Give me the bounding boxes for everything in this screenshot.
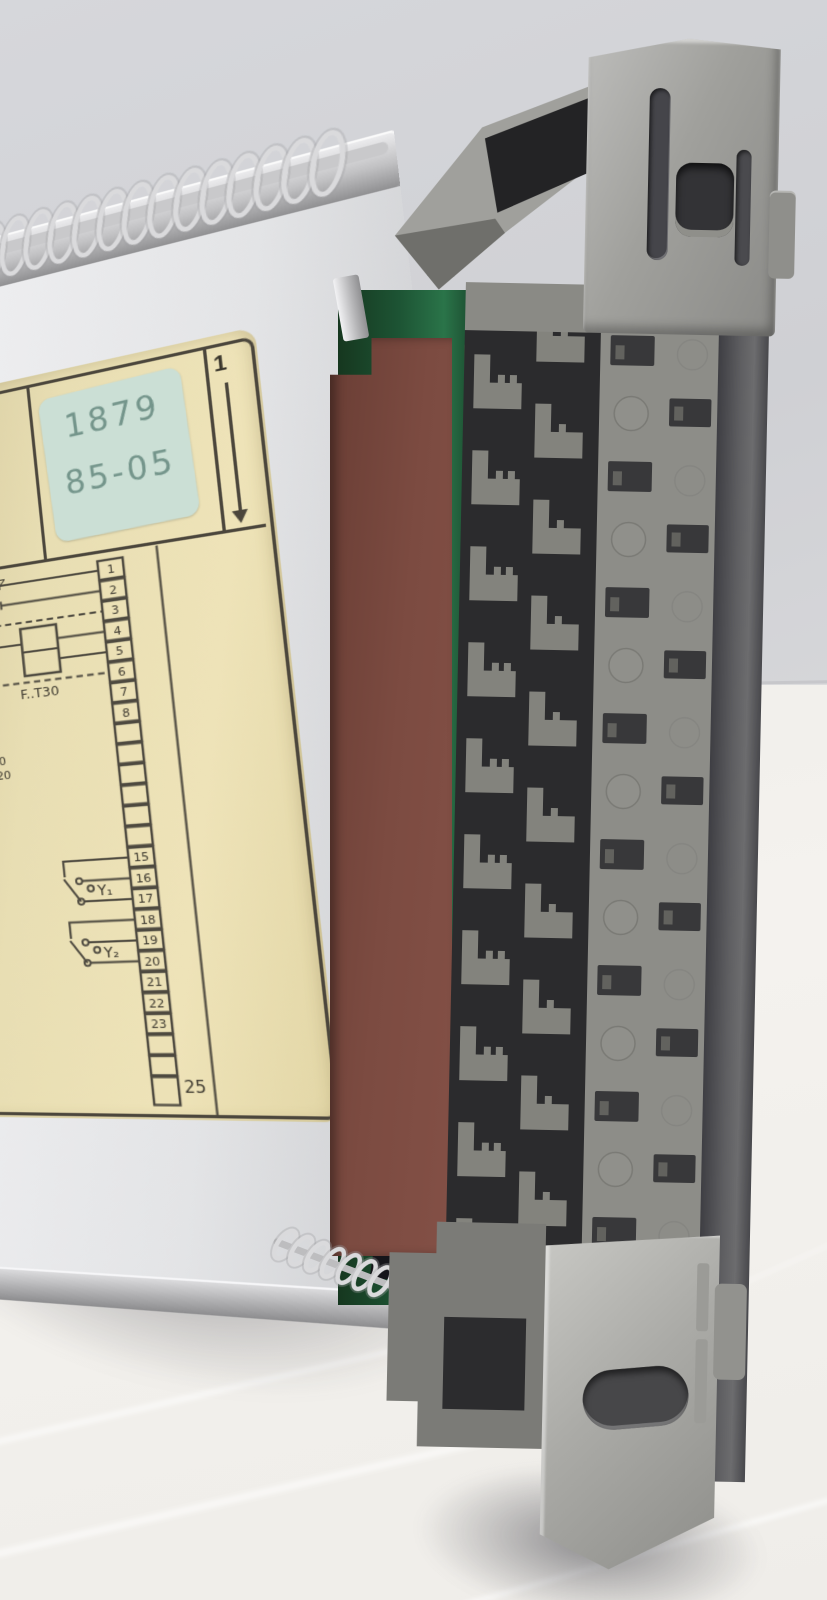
terminal-number: 5: [115, 644, 124, 659]
fuse-divider: [23, 648, 59, 653]
terminal-box: [114, 722, 142, 744]
bracket-ridge: [696, 1263, 709, 1331]
terminal-number: 3: [111, 603, 120, 618]
terminal-box: [123, 805, 151, 826]
relay-feed-wire: [69, 920, 136, 939]
terminal-number: 1: [106, 562, 115, 577]
terminal-number: 6: [117, 665, 126, 680]
terminal-box: [119, 763, 147, 784]
contact-circle: [82, 939, 89, 945]
terminal-box: [125, 825, 153, 846]
orientation-arrow: [225, 382, 243, 514]
wire: [0, 645, 22, 650]
wire: [57, 632, 104, 638]
contact-blade: [70, 940, 87, 963]
edge-connector: [357, 20, 827, 1589]
bracket-tab: [768, 190, 796, 279]
terminal-box: [121, 784, 149, 805]
bottom-bracket-tab: [713, 1284, 747, 1381]
wiring-diagram: 24V~ 50...60Hz 5 4: [0, 528, 331, 1117]
terminal-number: 8: [121, 706, 130, 721]
terminal-number: 7: [119, 685, 128, 700]
sticker-date: 85-05: [47, 438, 195, 507]
wire: [82, 878, 130, 881]
connector-foot-hole: [442, 1317, 526, 1411]
terminal-number: 2: [109, 583, 118, 598]
terminal-box: [149, 1056, 177, 1076]
terminal-box: [117, 742, 145, 764]
terminal-box: [151, 1077, 180, 1105]
terminal-strip: 12345678151617181920212223: [97, 557, 180, 1105]
contact-teeth: [445, 330, 601, 1285]
terminal-number: 22: [148, 997, 165, 1011]
terminal-number: 4: [113, 624, 122, 639]
device-ref: FD-H20: [0, 769, 12, 786]
wire: [85, 899, 133, 902]
supply-wire: [0, 571, 98, 586]
terminal-number: 16: [135, 871, 152, 886]
connector-contact-row: [445, 330, 601, 1285]
terminal-box: [147, 1035, 175, 1055]
terminal-number: 20: [144, 955, 161, 969]
terminal-25-label: 25: [183, 1078, 207, 1098]
fuse-label: F..T30: [20, 682, 60, 702]
terminal-number: 17: [137, 892, 154, 907]
inventory-sticker: 1879 85-05: [37, 366, 200, 543]
terminal-number: 21: [146, 976, 163, 990]
device-ref: DF-...: [0, 784, 1, 800]
terminal-number: 23: [150, 1018, 167, 1032]
output-y2-label: Y₂: [102, 944, 120, 961]
contact-circle: [94, 947, 101, 953]
bracket-slot: [734, 150, 751, 266]
orientation-arrowhead: [232, 509, 249, 525]
output-y1-label: Y₁: [96, 882, 114, 900]
bracket-ridge: [694, 1339, 708, 1423]
wire-tick: [1, 602, 2, 610]
contact-blade: [64, 879, 81, 903]
wire: [59, 652, 106, 658]
orientation-number: 1: [212, 350, 228, 379]
bracket-slot: [646, 88, 671, 260]
contact-circle: [87, 885, 94, 891]
supply-label: 24V~ 50...60Hz: [0, 574, 7, 604]
terminal-number: 15: [133, 850, 150, 865]
wire: [89, 940, 137, 942]
relay-feed-wire: [63, 857, 130, 877]
bracket-hole: [675, 162, 735, 237]
sticker-number: 1879: [39, 381, 186, 452]
terminal-number: 18: [139, 913, 156, 928]
photo-scene: ..22 0..50°C 1879 85-05 1 24V~ 50...60Hz: [0, 0, 827, 1600]
supply-wire: [1, 591, 100, 606]
terminal-number: 19: [142, 934, 159, 949]
contact-circle: [76, 878, 83, 884]
